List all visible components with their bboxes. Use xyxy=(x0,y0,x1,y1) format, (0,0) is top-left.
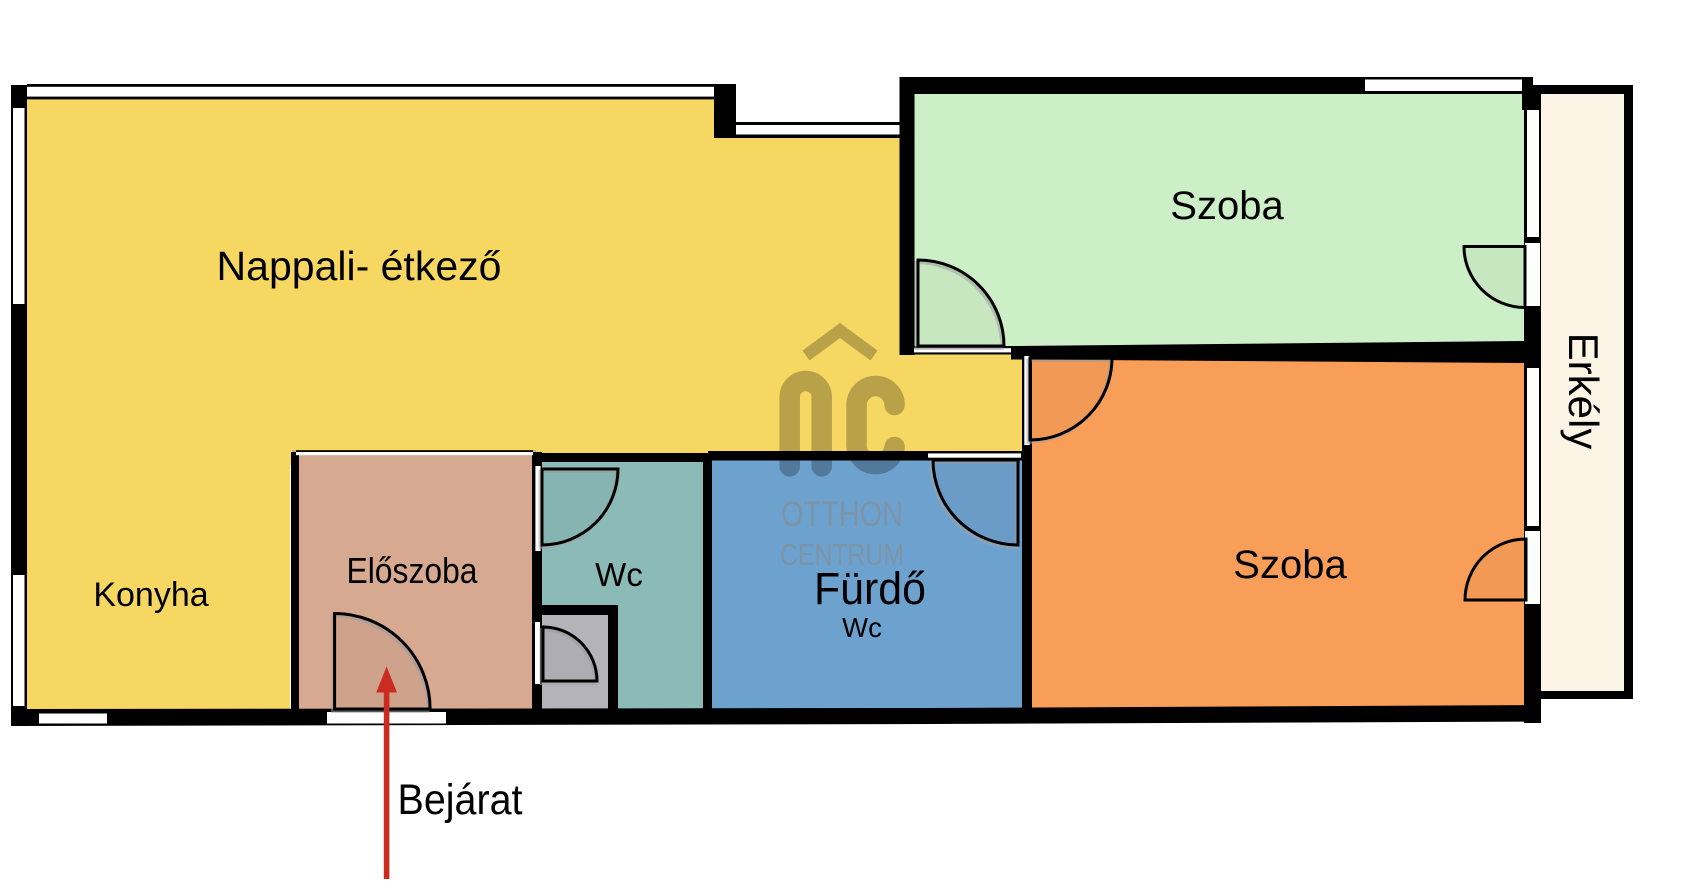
svg-text:Wc: Wc xyxy=(842,612,882,643)
svg-text:Előszoba: Előszoba xyxy=(347,550,479,591)
svg-text:Szoba: Szoba xyxy=(1170,184,1284,228)
svg-text:Szoba: Szoba xyxy=(1233,543,1347,587)
svg-text:Erkély: Erkély xyxy=(1560,333,1607,450)
svg-text:Wc: Wc xyxy=(595,556,643,593)
svg-text:Konyha: Konyha xyxy=(93,576,208,614)
svg-text:Bejárat: Bejárat xyxy=(398,776,523,824)
svg-text:Nappali- étkező: Nappali- étkező xyxy=(217,243,502,289)
svg-text:Fürdő: Fürdő xyxy=(814,563,926,614)
svg-text:OTTHON: OTTHON xyxy=(781,495,903,534)
